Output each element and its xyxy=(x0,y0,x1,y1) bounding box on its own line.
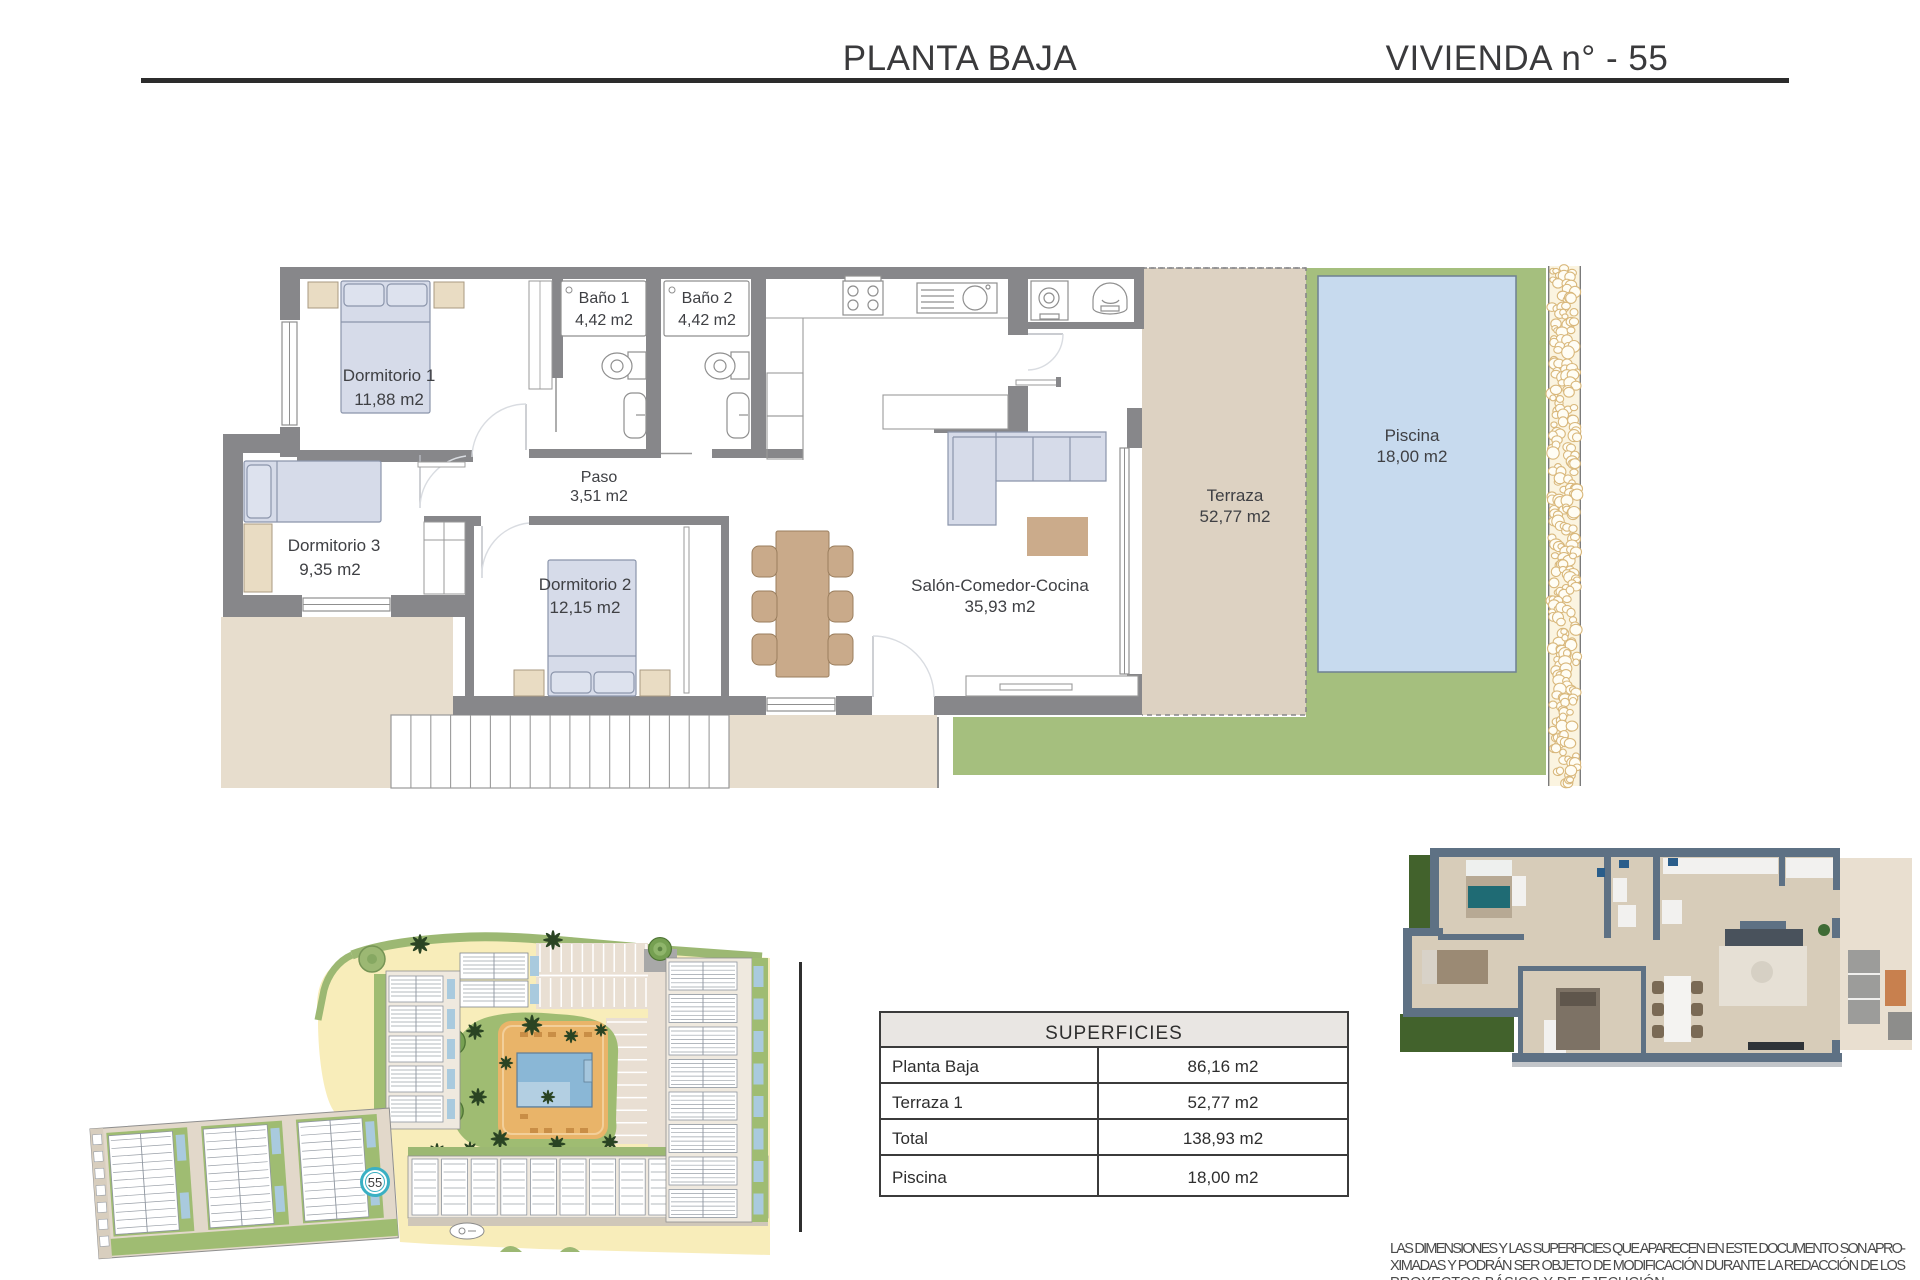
svg-text:18,00 m2: 18,00 m2 xyxy=(1377,447,1448,466)
svg-text:PROYECTOS BÁSICO Y DE EJECUCIÓ: PROYECTOS BÁSICO Y DE EJECUCIÓN. xyxy=(1390,1274,1669,1280)
svg-text:Terraza: Terraza xyxy=(1207,486,1264,505)
svg-text:4,42 m2: 4,42 m2 xyxy=(575,312,633,329)
svg-text:Baño 2: Baño 2 xyxy=(682,290,733,307)
svg-text:Piscina: Piscina xyxy=(892,1168,947,1187)
svg-text:Total: Total xyxy=(892,1129,928,1148)
svg-text:Dormitorio 2: Dormitorio 2 xyxy=(539,575,632,594)
svg-text:PLANTA BAJA: PLANTA BAJA xyxy=(843,39,1078,78)
svg-text:SUPERFICIES: SUPERFICIES xyxy=(1045,1023,1183,1044)
svg-text:Terraza 1: Terraza 1 xyxy=(892,1093,963,1112)
svg-text:18,00 m2: 18,00 m2 xyxy=(1188,1168,1259,1187)
svg-text:XIMADAS Y PODRÁN SER OBJETO DE: XIMADAS Y PODRÁN SER OBJETO DE MODIFICAC… xyxy=(1390,1257,1906,1274)
svg-text:35,93 m2: 35,93 m2 xyxy=(965,597,1036,616)
svg-text:Dormitorio 1: Dormitorio 1 xyxy=(343,366,436,385)
svg-text:4,42 m2: 4,42 m2 xyxy=(678,312,736,329)
svg-text:9,35 m2: 9,35 m2 xyxy=(299,560,360,579)
svg-text:86,16 m2: 86,16 m2 xyxy=(1188,1057,1259,1076)
svg-text:3,51 m2: 3,51 m2 xyxy=(570,488,628,505)
svg-text:Baño 1: Baño 1 xyxy=(579,290,630,307)
svg-text:VIVIENDA n° - 55: VIVIENDA n° - 55 xyxy=(1386,39,1669,78)
svg-text:Planta Baja: Planta Baja xyxy=(892,1057,979,1076)
svg-text:Salón-Comedor-Cocina: Salón-Comedor-Cocina xyxy=(911,576,1089,595)
svg-text:Paso: Paso xyxy=(581,469,618,486)
svg-text:52,77 m2: 52,77 m2 xyxy=(1200,507,1271,526)
svg-text:55: 55 xyxy=(368,1175,382,1190)
svg-text:138,93 m2: 138,93 m2 xyxy=(1183,1129,1263,1148)
svg-text:LAS DIMENSIONES Y LAS SUPERFIC: LAS DIMENSIONES Y LAS SUPERFICIES QUE AP… xyxy=(1390,1241,1906,1257)
svg-text:52,77 m2: 52,77 m2 xyxy=(1188,1093,1259,1112)
svg-text:Piscina: Piscina xyxy=(1385,426,1440,445)
svg-text:11,88 m2: 11,88 m2 xyxy=(354,390,424,409)
svg-text:Dormitorio 3: Dormitorio 3 xyxy=(288,536,381,555)
svg-text:12,15 m2: 12,15 m2 xyxy=(550,598,621,617)
